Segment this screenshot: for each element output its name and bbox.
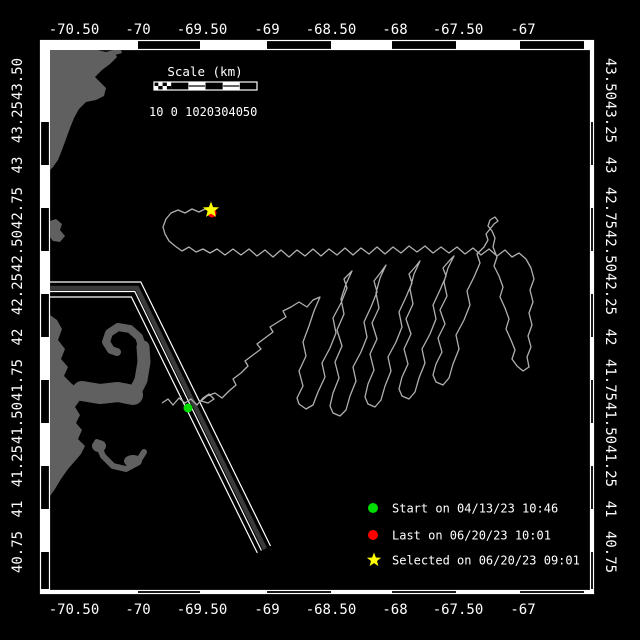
legend-label: Selected on 06/20/23 09:01 bbox=[392, 554, 580, 568]
axis-label-lon: -69 bbox=[254, 22, 279, 38]
axis-label-lat: 40.75 bbox=[10, 531, 26, 573]
island bbox=[92, 440, 106, 452]
lon-tick-bar bbox=[392, 41, 456, 50]
axis-label-lon: -70 bbox=[125, 22, 150, 38]
axis-label-lon: -68.50 bbox=[306, 22, 357, 38]
axis-label-lon: -68.50 bbox=[306, 602, 357, 618]
axis-label-lon: -70.50 bbox=[49, 22, 100, 38]
axis-label-lat: 42.75 bbox=[10, 187, 26, 229]
axis-label-lon: -67 bbox=[510, 22, 535, 38]
legend-label: Last on 06/20/23 10:01 bbox=[392, 529, 551, 543]
legend-start-dot bbox=[368, 503, 378, 513]
land-shape bbox=[82, 391, 133, 395]
scalebar-title: Scale (km) bbox=[167, 64, 242, 79]
lat-tick-bar bbox=[41, 380, 50, 423]
axis-label-lat: 41.75 bbox=[602, 359, 618, 401]
scalebar-ticks: 10 0 1020304050 bbox=[149, 105, 257, 119]
axis-label-lon: -67 bbox=[510, 602, 535, 618]
lat-tick-bar bbox=[41, 294, 50, 337]
axis-label-lat: 43.25 bbox=[10, 101, 26, 143]
axis-label-lon: -69.50 bbox=[177, 22, 228, 38]
axis-label-lat: 43.50 bbox=[602, 58, 618, 100]
axis-label-lon: -70.50 bbox=[49, 602, 100, 618]
axis-label-lat: 42 bbox=[602, 329, 618, 346]
lon-tick-bar bbox=[138, 41, 200, 50]
lat-tick-bar bbox=[41, 552, 50, 589]
axis-label-lat: 41 bbox=[602, 501, 618, 518]
axis-label-lat: 41.25 bbox=[10, 445, 26, 487]
axis-label-lat: 41.75 bbox=[10, 359, 26, 401]
axis-label-lat: 42.25 bbox=[10, 273, 26, 315]
axis-label-lat: 42 bbox=[10, 329, 26, 346]
axis-label-lat: 43.25 bbox=[602, 101, 618, 143]
axis-label-lat: 41 bbox=[10, 501, 26, 518]
lon-tick-bar bbox=[520, 41, 584, 50]
axis-label-lat: 42.50 bbox=[10, 230, 26, 272]
legend: Start on 04/13/23 10:46Last on 06/20/23 … bbox=[367, 502, 580, 568]
axis-label-lon: -70 bbox=[125, 602, 150, 618]
axis-label-lat: 41.25 bbox=[602, 445, 618, 487]
axis-label-lat: 42.25 bbox=[602, 273, 618, 315]
axis-label-lon: -67.50 bbox=[433, 602, 484, 618]
axis-label-lon: -69.50 bbox=[177, 602, 228, 618]
island bbox=[124, 455, 142, 467]
map-canvas: -70.50-70-69.50-69-68.50-68-67.50-67-70.… bbox=[0, 0, 640, 640]
axis-label-lat: 41.50 bbox=[10, 402, 26, 444]
legend-last-dot bbox=[368, 530, 378, 540]
axis-label-lat: 43 bbox=[10, 157, 26, 174]
axis-label-lat: 43.50 bbox=[10, 58, 26, 100]
start-marker[interactable] bbox=[184, 404, 193, 413]
axis-label-lat: 43 bbox=[602, 157, 618, 174]
axis-label-lat: 41.50 bbox=[602, 402, 618, 444]
lat-tick-bar bbox=[41, 122, 50, 165]
axis-label-lon: -67.50 bbox=[433, 22, 484, 38]
axis-label-lat: 40.75 bbox=[602, 531, 618, 573]
axis-label-lat: 42.75 bbox=[602, 187, 618, 229]
glider-track-map: -70.50-70-69.50-69-68.50-68-67.50-67-70.… bbox=[0, 0, 640, 640]
lat-tick-bar bbox=[41, 208, 50, 251]
lat-tick-bar bbox=[41, 466, 50, 509]
axis-label-lat: 42.50 bbox=[602, 230, 618, 272]
legend-label: Start on 04/13/23 10:46 bbox=[392, 502, 558, 516]
lon-tick-bar bbox=[267, 41, 331, 50]
axis-label-lon: -69 bbox=[254, 602, 279, 618]
axis-label-lon: -68 bbox=[382, 602, 407, 618]
axis-label-lon: -68 bbox=[382, 22, 407, 38]
